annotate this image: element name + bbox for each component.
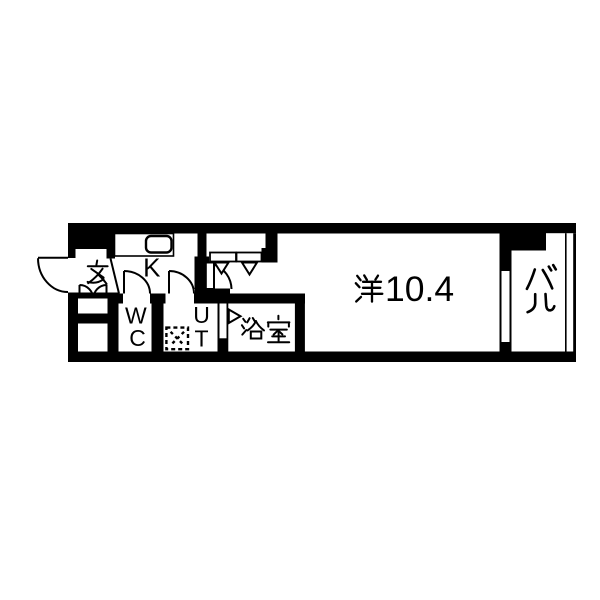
svg-text:U: U [193, 302, 210, 328]
svg-text:10.4: 10.4 [385, 269, 454, 309]
svg-text:T: T [195, 326, 209, 352]
svg-text:C: C [129, 325, 146, 351]
svg-text:K: K [143, 253, 161, 283]
